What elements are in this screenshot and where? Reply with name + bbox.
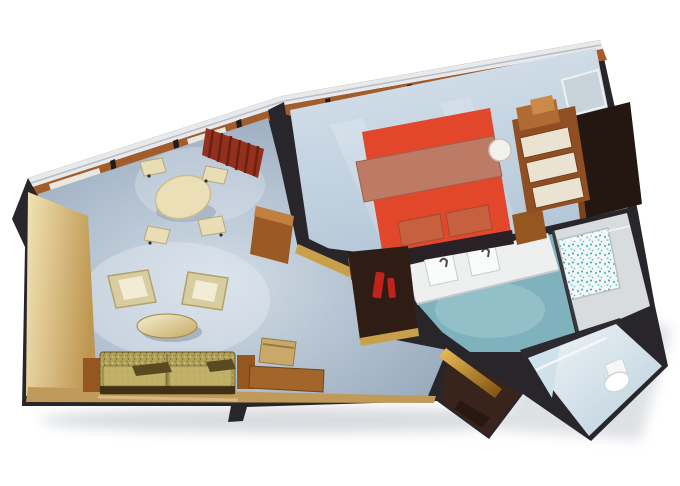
stool [489,139,511,161]
sofa-base [100,386,235,394]
tv-cabinet [250,206,294,264]
desk-chair [259,338,296,366]
chair-leg [219,233,222,236]
floor-plan-stage [0,0,680,486]
chair-leg [204,179,207,182]
coffee-table-top [137,314,197,338]
sofa-group [83,352,255,394]
desk [249,366,324,392]
dining-chair [198,216,226,236]
minibar-body [348,246,418,340]
side-table [83,358,101,392]
armchair-cushion [192,280,218,302]
chair-leg [148,241,151,244]
floor-plan-rendering [0,0,680,486]
armchair-left [108,270,156,308]
armchair-right [182,272,228,310]
chair-leg [147,174,150,177]
